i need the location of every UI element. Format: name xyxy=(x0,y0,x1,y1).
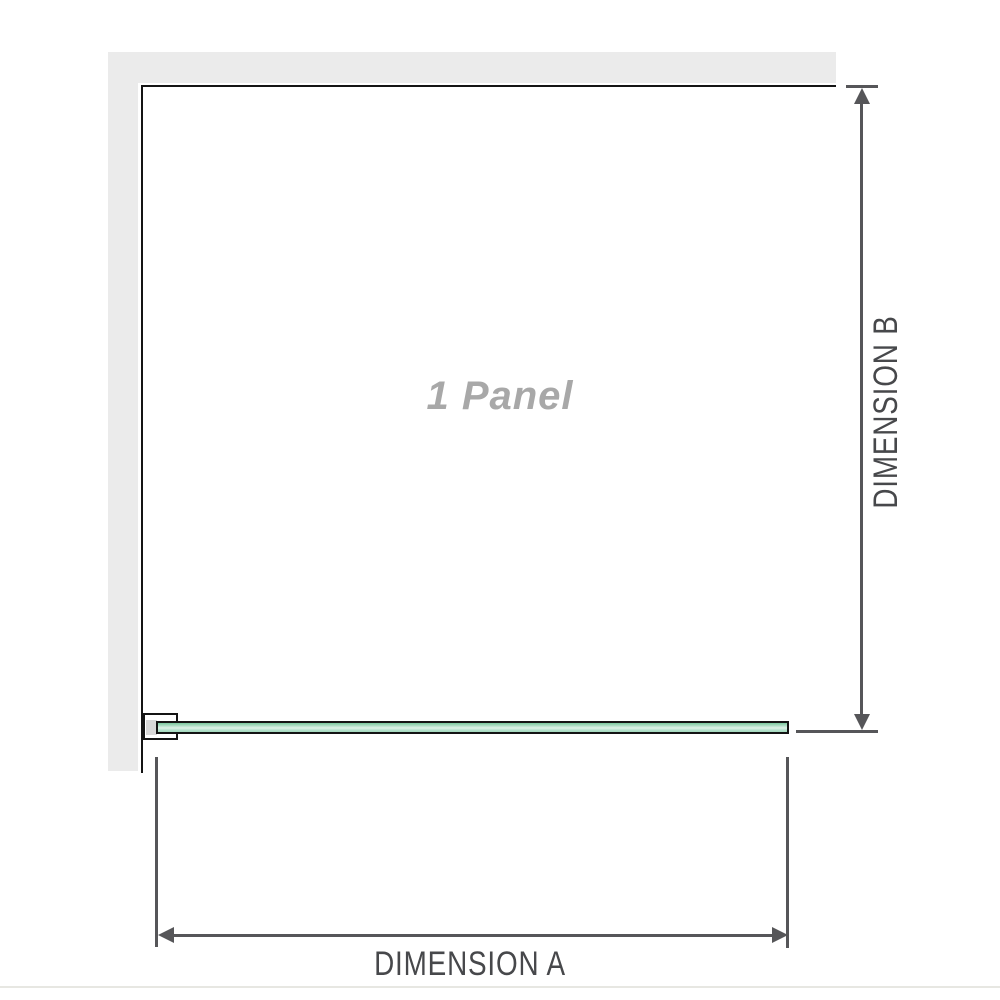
wall-left-bar xyxy=(108,52,138,771)
dimension-b-line xyxy=(860,100,863,717)
arrow-left-icon xyxy=(158,927,174,943)
wall-top-bar xyxy=(108,52,836,83)
arrow-right-icon xyxy=(772,927,788,943)
panel-label: 1 Panel xyxy=(340,368,660,424)
dimension-b-label: DIMENSION B xyxy=(866,289,906,535)
dimension-b-bottom-tick xyxy=(796,730,878,733)
dimension-a-left-extension-line xyxy=(155,757,158,947)
dimension-a-line xyxy=(171,934,774,937)
dimension-a-label: DIMENSION A xyxy=(347,944,593,984)
panel-outline xyxy=(141,85,836,773)
dimension-a-right-extension-line xyxy=(786,757,789,948)
product-diagram: 1 Panel DIMENSION B DIMENSION A xyxy=(0,0,1000,1000)
glass-panel xyxy=(156,721,789,734)
arrow-up-icon xyxy=(854,88,870,104)
bottom-divider xyxy=(0,986,1000,988)
arrow-down-icon xyxy=(854,714,870,730)
